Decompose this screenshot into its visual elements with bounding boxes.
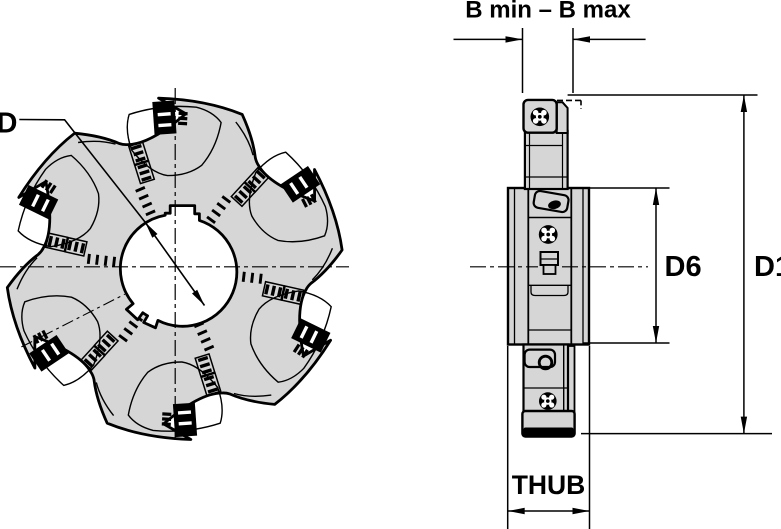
svg-text:THUB: THUB bbox=[512, 470, 586, 500]
svg-text:D6: D6 bbox=[665, 251, 702, 283]
svg-text:B min – B max: B min – B max bbox=[465, 0, 631, 24]
svg-text:D: D bbox=[0, 108, 17, 140]
svg-text:D1: D1 bbox=[754, 251, 781, 283]
